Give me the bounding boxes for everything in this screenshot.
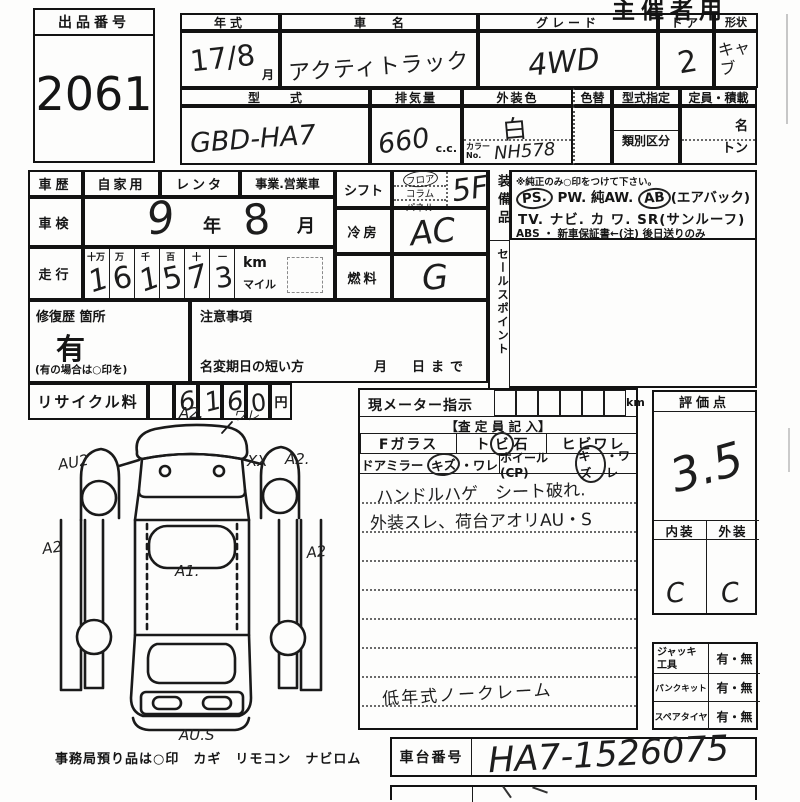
color-no-label: カラーNo. [466, 143, 492, 161]
damage-mark: ワレ [233, 409, 259, 424]
damage-mark: A2 [40, 537, 63, 558]
inspection-year-unit: 年 [203, 212, 221, 238]
mileage-cell: 十万1 万6 千1 百5 十7 一3 km マイル [83, 247, 335, 300]
door-header: ドア [658, 13, 714, 31]
aircon-value: AC [408, 210, 457, 254]
note-line [362, 560, 636, 562]
meter-digit-cell [604, 390, 626, 416]
note-line [362, 647, 636, 649]
bumper-light [153, 697, 181, 709]
damage-mark: A2. [178, 404, 204, 422]
scan-line [788, 428, 790, 472]
damage-mark: AU2 [56, 451, 90, 474]
equipment-line3: ABS ・ 新車保証書←(注) 後日送りのみ [516, 226, 706, 241]
model-header: 型式 [180, 88, 370, 106]
meter-digit-cell [582, 390, 604, 416]
accessories-table: ジャッキ 工具 有・無 パンクキット 有・無 スペアタイヤ 有・無 [652, 642, 758, 730]
sales-point-box [510, 240, 757, 388]
equipment-ab: AB [637, 187, 671, 211]
shift-option-column: コラム [394, 185, 446, 199]
grade-header: グレード [478, 13, 658, 31]
history-rental: レンタ [160, 170, 240, 197]
mileage-digit: 5 [160, 259, 186, 297]
ext-color-cell: 白 カラーNo. NH578 [462, 106, 573, 165]
chassis-value: HA7-1526075 [487, 729, 730, 782]
mileage-checkbox [287, 257, 323, 293]
meter-digit-cell [494, 390, 516, 416]
damage-mark: A2. [284, 450, 310, 468]
jack-tools-value: 有・無 [709, 644, 760, 674]
meter-unit: km [626, 396, 645, 409]
repair-box: 修復歴 箇所 有 (有の場合は○印を) [28, 300, 190, 383]
history-private: 自家用 [83, 170, 160, 197]
rear-wheel-right [271, 621, 305, 655]
interior-label: 内装 [654, 520, 707, 540]
assessor-header: 【査 定 員 記 入】 [360, 416, 636, 434]
repaint-cell [573, 106, 612, 165]
name-change-label: 名変期日の短い方 [200, 356, 304, 375]
model-value: GBD-HA7 [189, 120, 317, 160]
caution-box: 注意事項 名変期日の短い方 月 日まで [190, 300, 488, 383]
displacement-cell: 660 c.c. [370, 106, 462, 165]
capacity-tons-unit: トン [722, 137, 748, 156]
mileage-col: 万6 [110, 249, 135, 298]
year-month-unit: 月 [262, 66, 274, 83]
type-designation-header: 型式指定 [612, 88, 680, 106]
pen-mark [502, 786, 512, 799]
stone-pre: ト [476, 434, 490, 454]
name-change-date-until: 月 日まで [374, 356, 469, 375]
rear-wheel-left [77, 620, 111, 654]
side-rail [61, 520, 81, 690]
exhibit-number-value: 2061 [35, 36, 153, 152]
model-cell: GBD-HA7 [180, 106, 370, 165]
equipment-line2: TV. ナビ. カ ワ. SR(サンルーフ) [518, 208, 745, 228]
sales-point-label: セールスポイント [495, 248, 511, 356]
exhibit-number-box: 出品番号 2061 [33, 8, 155, 163]
vertical-strip: 装備品 セールスポイント [488, 170, 510, 388]
meter-digit-cell [516, 390, 538, 416]
note-line [362, 618, 636, 620]
f-glass-label: Fガラス [360, 433, 457, 454]
mileage-col: 十7 [185, 249, 210, 298]
shift-options: フロア コラム パネル [394, 172, 448, 206]
mileage-digit: 3 [213, 260, 235, 295]
equipment-ps: PS. [515, 186, 553, 210]
front-windshield [148, 644, 235, 683]
shape-cell: キャブ [714, 31, 758, 88]
shape-header: 形状 [714, 13, 758, 31]
bumper-light [203, 697, 231, 709]
inspection-cell: 9 年 8 月 [83, 197, 335, 247]
shape-value: キャブ [717, 37, 757, 79]
wheel-rest: ・ワレ [606, 447, 640, 481]
history-label: 車歴 [28, 170, 83, 197]
inspection-year-value: 9 [144, 191, 179, 245]
aircon-cell: AC [392, 208, 488, 254]
inspection-month-unit: 月 [297, 212, 315, 238]
fuel-label: 燃料 [335, 254, 392, 300]
inspection-label: 車検 [28, 197, 83, 247]
door-mirror-cell: ドアミラー キズ・ワレ [360, 454, 500, 474]
damage-mark: XX [246, 452, 268, 470]
evaluation-box: 評価点 3.5 内装 外装 C C [652, 390, 757, 615]
shift-cell: フロア コラム パネル 5F [392, 170, 488, 208]
front-wheel-right [263, 479, 297, 513]
displacement-header: 排気量 [370, 88, 462, 106]
scan-line [786, 14, 788, 124]
fuel-cell: G [392, 254, 488, 300]
history-commercial: 事業.営業車 [240, 170, 335, 197]
windshield [139, 454, 245, 497]
exhibit-number-label: 出品番号 [35, 10, 153, 36]
damage-mark: A2 [305, 542, 328, 562]
ext-color-header: 外装色 [462, 88, 573, 106]
exterior-grade-cell: C [707, 540, 759, 613]
mirror-circled-mark: キズ [426, 451, 461, 477]
wheel-cell: ホイール(CP) キズ・ワレ [500, 454, 640, 474]
wiper-pivot [214, 466, 224, 476]
mileage-col: 一3 [210, 249, 235, 298]
equipment-box: ※純正のみ○印をつけて下さい。 PS. PW. 純AW. AB(エアバック) T… [510, 170, 757, 240]
front-wheel-left [82, 481, 116, 515]
equipment-mid: PW. 純AW. [557, 190, 633, 206]
exterior-grade: C [719, 577, 742, 610]
shift-label: シフト [335, 170, 392, 208]
repair-note: (有の場合は○印を) [35, 362, 127, 377]
strip-divider [490, 240, 509, 241]
type-designation-cell: 類別区分 [612, 106, 680, 165]
year-header: 年式 [180, 13, 280, 31]
fuel-value: G [421, 257, 450, 299]
puncture-kit-value: 有・無 [709, 674, 760, 702]
mileage-col: 百5 [160, 249, 185, 298]
damage-mark: A1. [174, 562, 200, 580]
shift-value: 5F [450, 170, 491, 210]
meter-table: 現メーター指示 km 【査 定 員 記 入】 Fガラス トビ石 ヒビワレ ドアミ… [358, 388, 638, 730]
partial-row [390, 785, 757, 800]
side-rail [279, 520, 297, 688]
color-no-value: NH578 [493, 139, 556, 164]
equipment-ab-suffix: (エアバック) [671, 190, 750, 206]
spare-tire-label: スペアタイヤ [654, 702, 709, 730]
spare-tire-value: 有・無 [709, 702, 760, 730]
caution-label: 注意事項 [200, 306, 252, 325]
mileage-digit: 7 [184, 258, 212, 297]
wheel-label: ホイール(CP) [500, 449, 572, 480]
meter-digit-cell [560, 390, 582, 416]
inspection-month-value: 8 [241, 194, 273, 246]
interior-grade-cell: C [654, 540, 707, 613]
repaint-header: 色替 [573, 88, 612, 106]
vehicle-diagram: A2. ワレ AU2 XX A2. A2 A2 A1. AU.S [35, 400, 345, 745]
year-value: 17/8 [188, 38, 256, 79]
meter-label: 現メーター指示 [368, 395, 473, 415]
car-name-header: 車名 [280, 13, 478, 31]
bumper [141, 692, 243, 714]
capacity-persons-unit: 名 [735, 115, 748, 134]
mileage-label: 走行 [28, 247, 83, 300]
side-rail [85, 520, 103, 688]
car-name-cell: アクティトラック [280, 31, 478, 88]
wiper-pivot [160, 466, 170, 476]
chassis-row: 車台番号 HA7-1526075 [390, 737, 757, 777]
interior-grade: C [664, 577, 686, 610]
assessor-note: 外装スレ、荷台アオリAU・S [370, 505, 592, 534]
mileage-digit: 1 [84, 261, 113, 300]
aircon-label: 冷房 [335, 208, 392, 254]
mileage-km-unit: km [243, 255, 267, 271]
mileage-digit: 6 [110, 260, 135, 298]
meter-digit-cell [538, 390, 560, 416]
evaluation-score: 3.5 [664, 431, 749, 503]
note-line [362, 589, 636, 591]
grade-cell: 4WD [478, 31, 658, 88]
capacity-header: 定員・積載 [680, 88, 757, 106]
displacement-unit: c.c. [436, 142, 457, 155]
grade-value: 4WD [526, 41, 601, 83]
equipment-line1: PS. PW. 純AW. AB(エアバック) [516, 186, 750, 209]
door-mirror-label: ドアミラー [361, 455, 423, 474]
capacity-cell: 名 トン [680, 106, 757, 165]
jack-tools-label: ジャッキ 工具 [654, 644, 709, 674]
displacement-value: 660 [376, 123, 431, 161]
puncture-kit-label: パンクキット [654, 674, 709, 702]
exterior-label: 外装 [707, 520, 759, 540]
car-name-value: アクティトラック [287, 43, 470, 88]
mirror-wheel-row: ドアミラー キズ・ワレ ホイール(CP) キズ・ワレ [360, 454, 636, 474]
color-no-strip: カラーNo. NH578 [464, 139, 571, 163]
mirror-rest: ・ワレ [460, 455, 498, 474]
mileage-col: 十万1 [85, 249, 110, 298]
mileage-mile-unit: マイル [243, 276, 276, 292]
evaluation-label: 評価点 [654, 392, 755, 412]
damage-mark: AU.S [178, 726, 215, 744]
shift-option-floor: フロア [394, 172, 446, 185]
door-value: 2 [675, 44, 700, 82]
class-section-label: 類別区分 [614, 130, 678, 150]
pen-mark [532, 786, 548, 793]
mileage-col: 千1 [135, 249, 160, 298]
chassis-label: 車台番号 [392, 739, 472, 775]
office-note: 事務局預り品は○印 カギ リモコン ナビロム [55, 748, 361, 767]
repair-label: 修復歴 箇所 [36, 306, 106, 325]
year-cell: 17/8 月 [180, 31, 280, 88]
door-cell: 2 [658, 31, 714, 88]
